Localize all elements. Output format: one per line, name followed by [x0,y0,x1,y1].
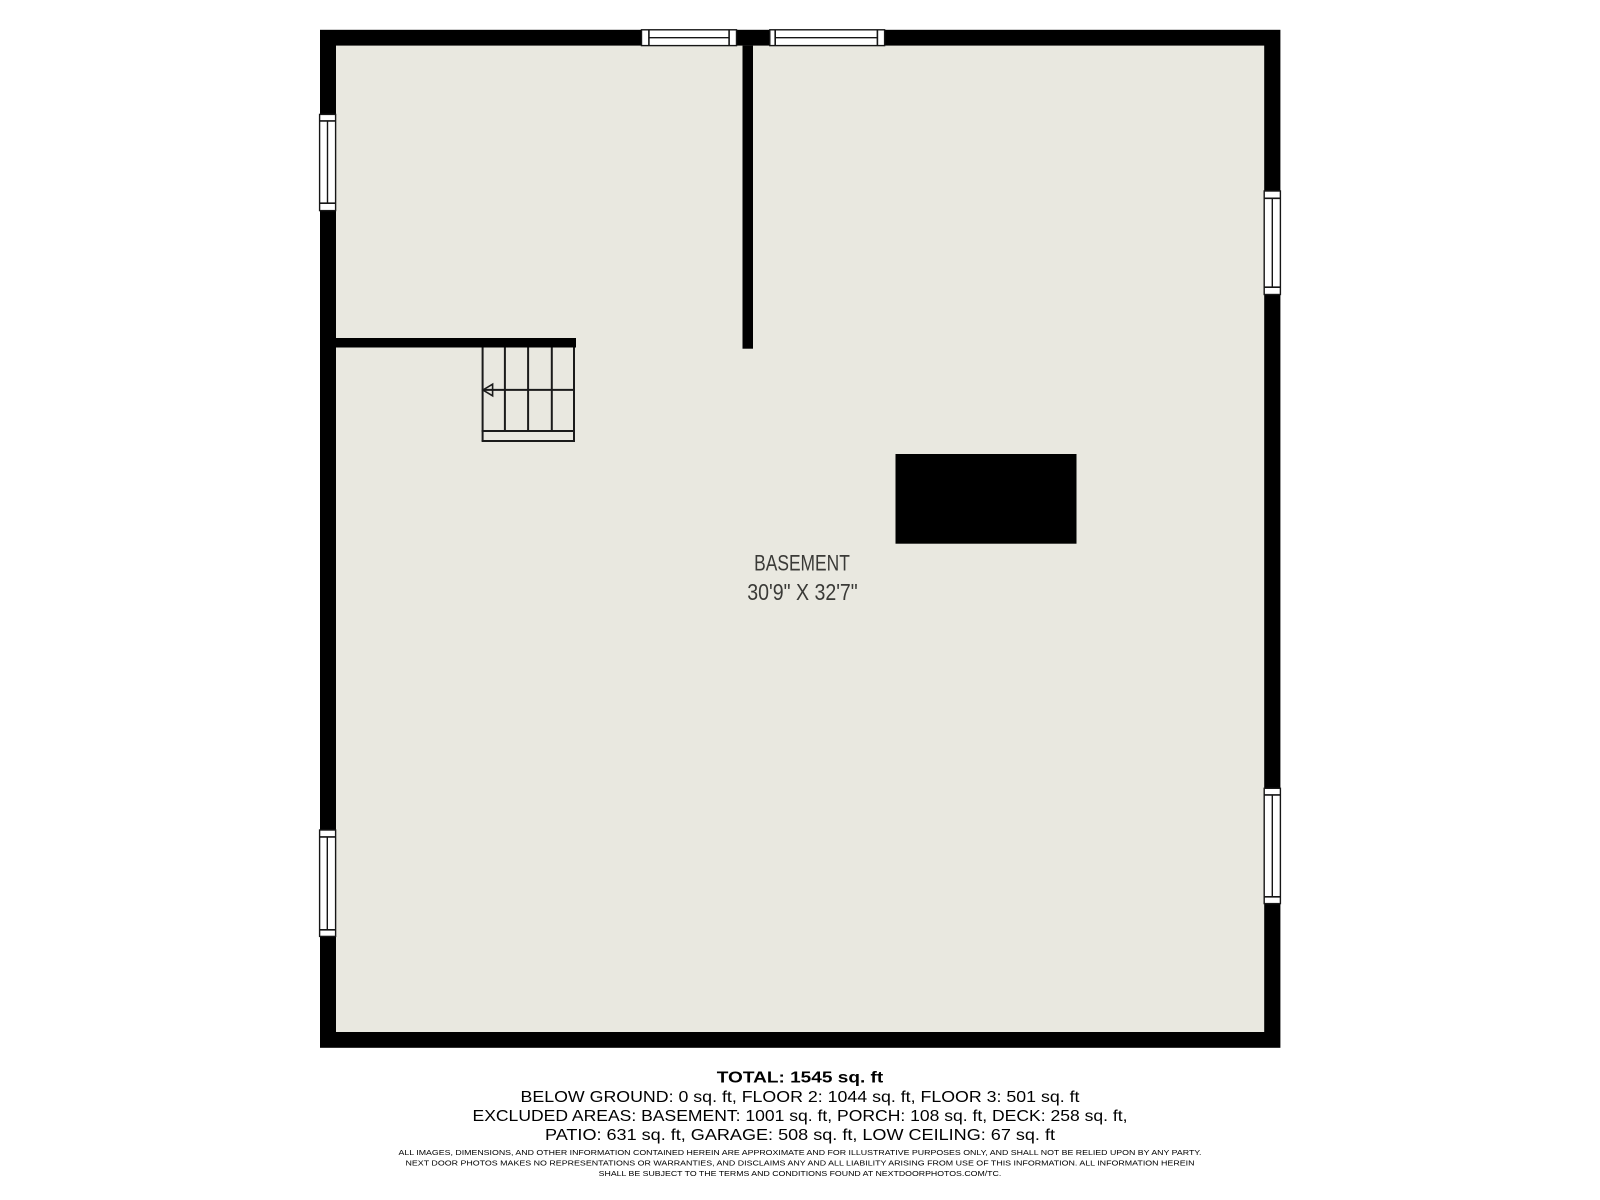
svg-text:BELOW GROUND: 0 sq. ft, FLOOR: BELOW GROUND: 0 sq. ft, FLOOR 2: 1044 sq… [521,1089,1081,1106]
svg-text:BASEMENT: BASEMENT [754,551,850,576]
svg-text:SHALL BE SUBJECT TO THE TERMS: SHALL BE SUBJECT TO THE TERMS AND CONDIT… [599,1169,1002,1178]
svg-text:TOTAL: 1545 sq. ft: TOTAL: 1545 sq. ft [717,1070,884,1087]
svg-text:30'9" X 32'7": 30'9" X 32'7" [747,579,858,605]
svg-text:PATIO: 631 sq. ft, GARAGE: 508: PATIO: 631 sq. ft, GARAGE: 508 sq. ft, L… [545,1127,1056,1144]
svg-text:ALL IMAGES, DIMENSIONS, AND OT: ALL IMAGES, DIMENSIONS, AND OTHER INFORM… [399,1148,1202,1157]
svg-text:EXCLUDED AREAS: BASEMENT: 1001: EXCLUDED AREAS: BASEMENT: 1001 sq. ft, P… [473,1108,1128,1125]
svg-text:NEXT DOOR PHOTOS MAKES NO REPR: NEXT DOOR PHOTOS MAKES NO REPRESENTATION… [406,1158,1195,1167]
